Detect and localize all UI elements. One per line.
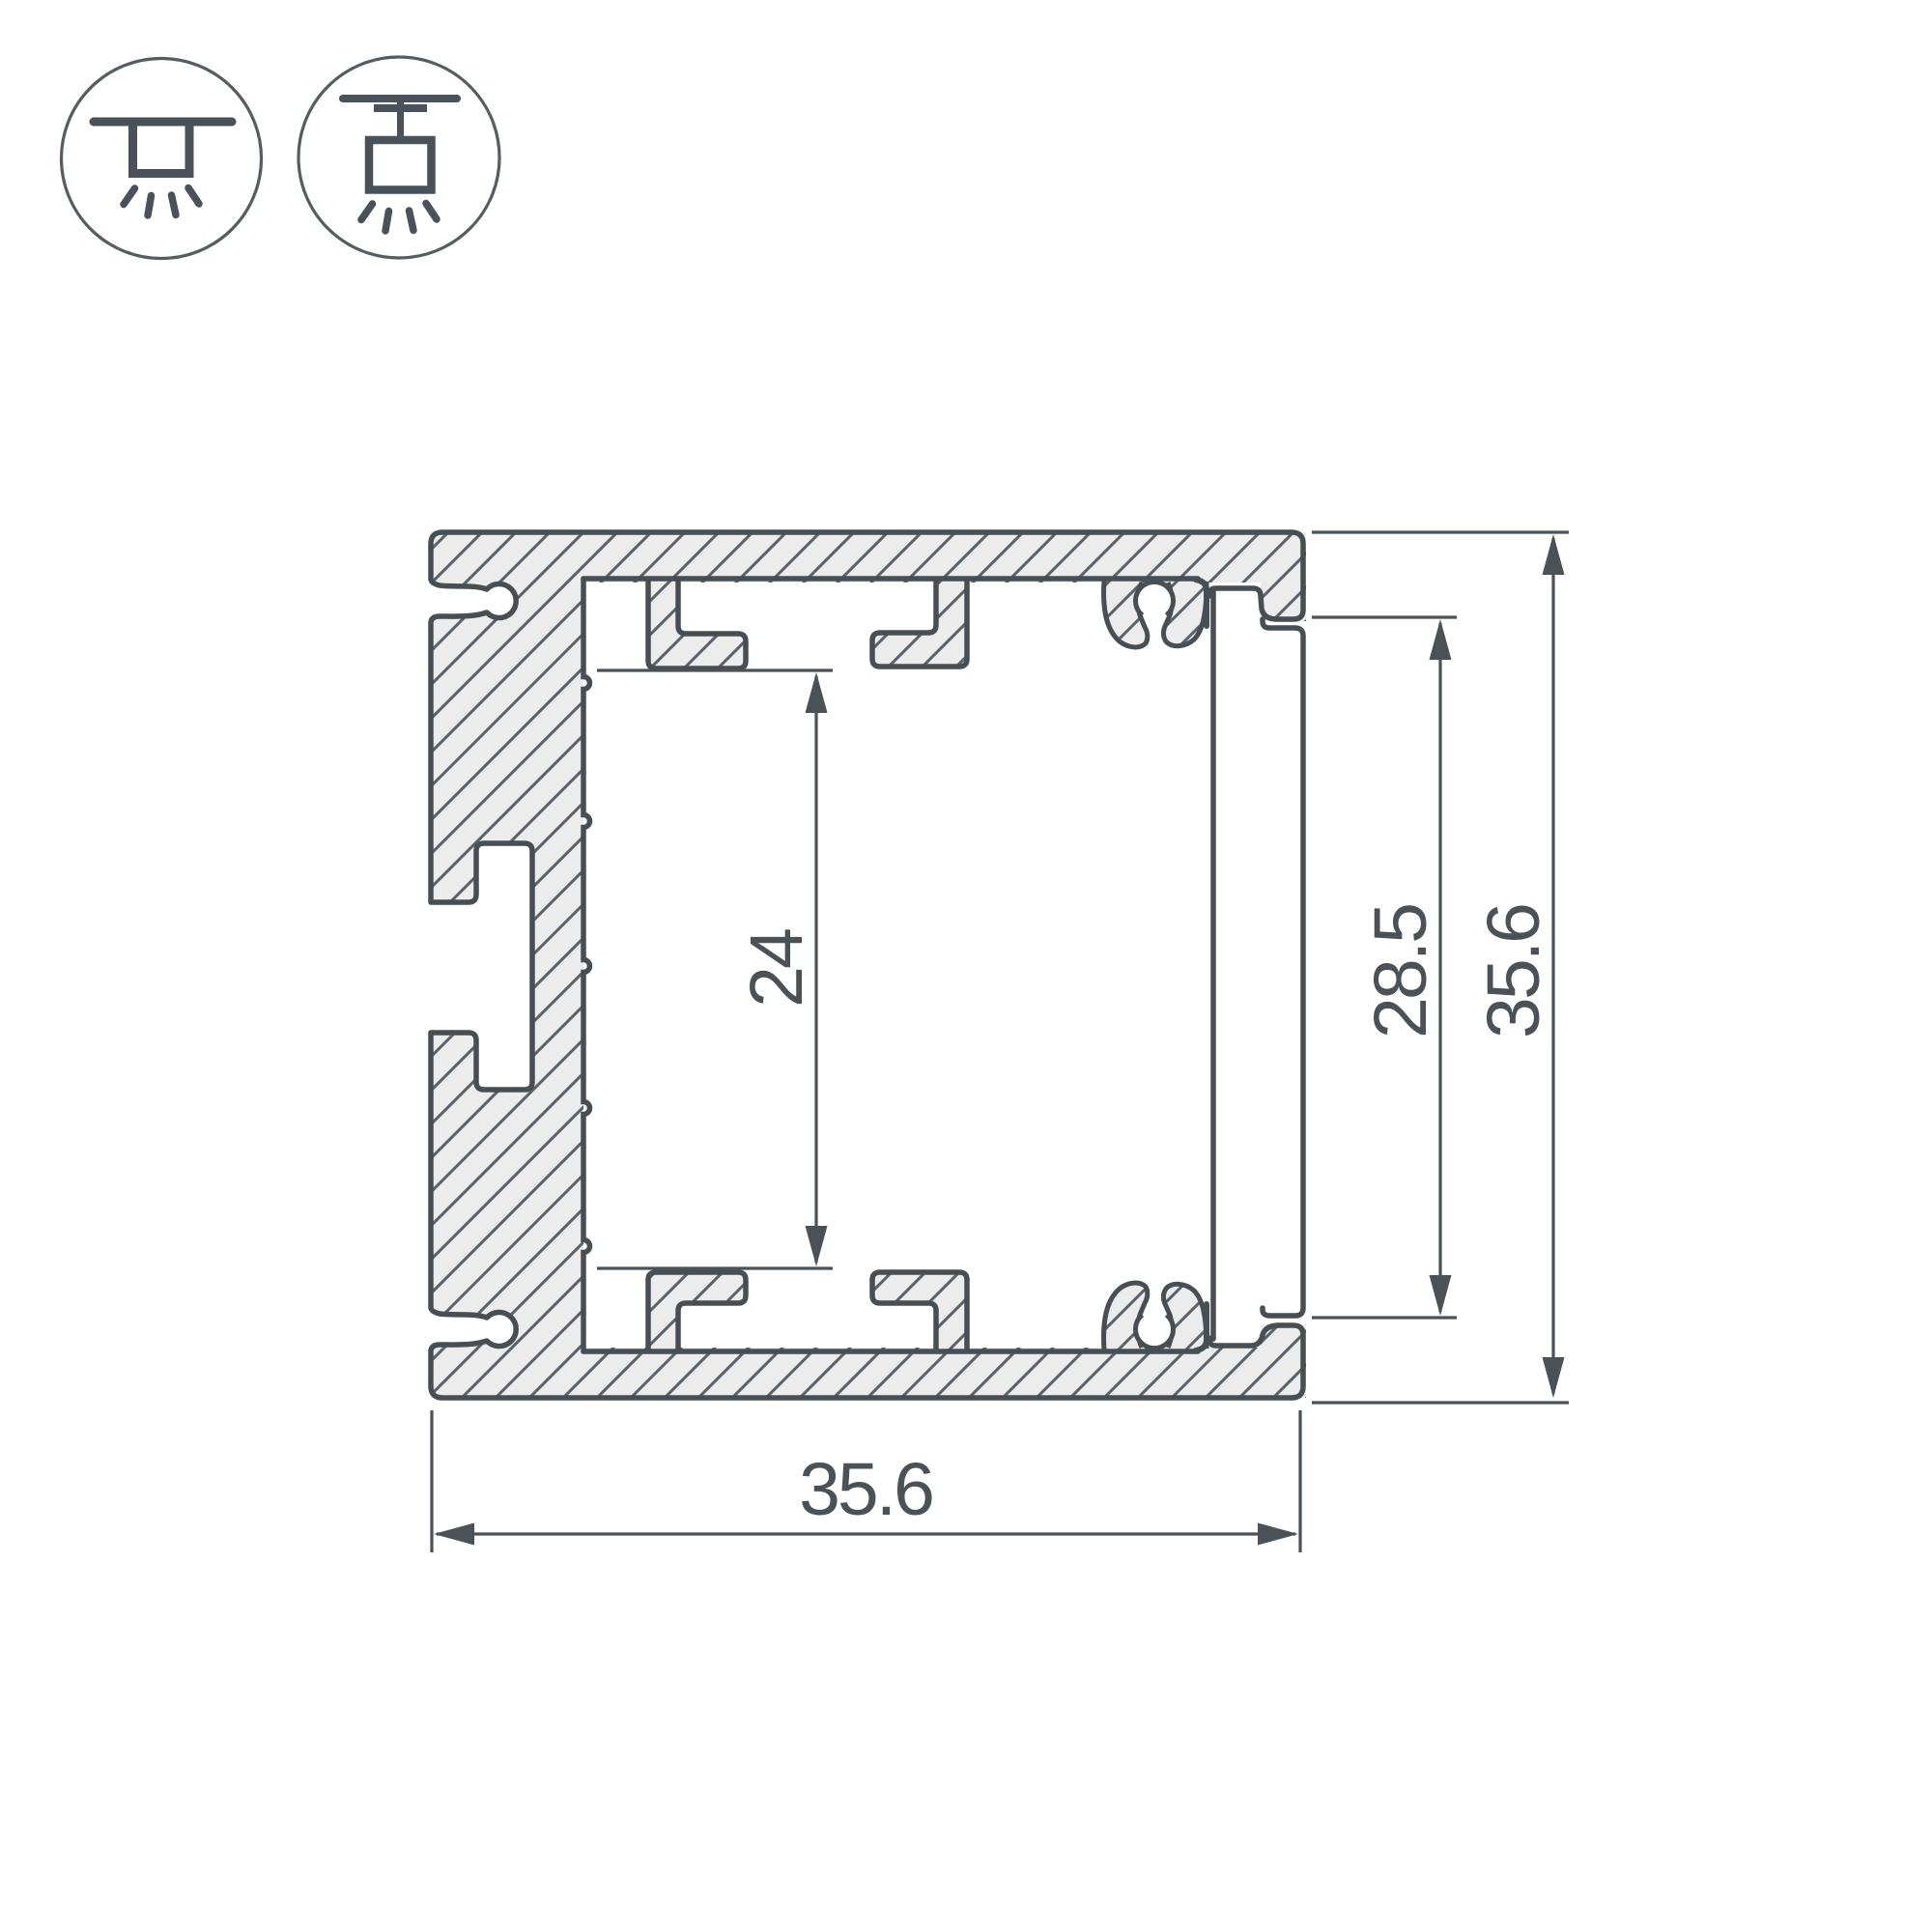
svg-text:35.6: 35.6 xyxy=(1472,905,1555,1038)
svg-text:24: 24 xyxy=(735,929,818,1008)
svg-text:28.5: 28.5 xyxy=(1359,905,1442,1038)
svg-text:35.6: 35.6 xyxy=(799,1448,932,1531)
